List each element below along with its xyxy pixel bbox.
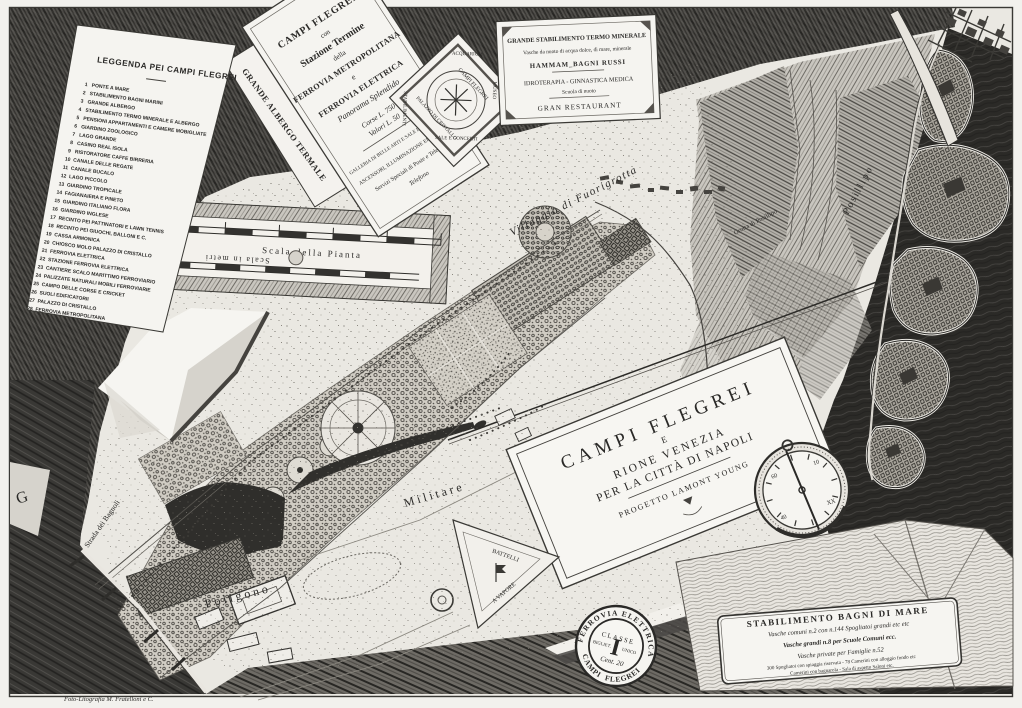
svg-text:MUSEO: MUSEO (491, 81, 497, 99)
svg-text:Foto-Litografia M. Fratelloni: Foto-Litografia M. Fratelloni e C. (63, 696, 154, 703)
